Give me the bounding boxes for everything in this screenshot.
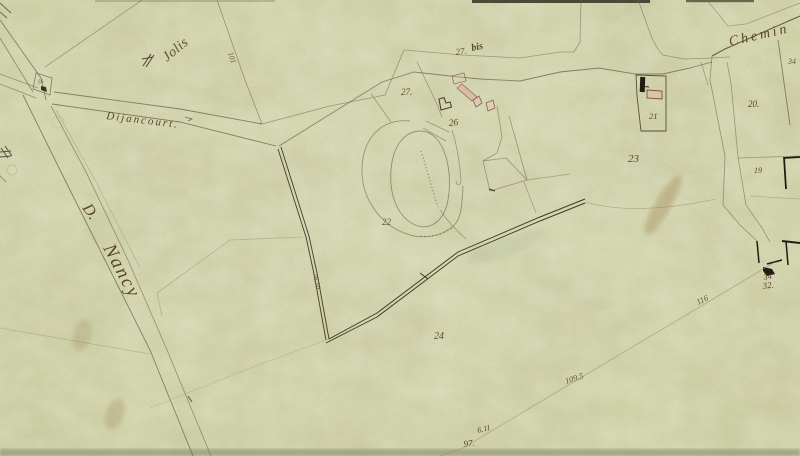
svg-text:20.: 20. xyxy=(748,99,759,109)
svg-text:27.: 27. xyxy=(401,87,412,97)
svg-text:32.: 32. xyxy=(761,280,775,292)
svg-text:26: 26 xyxy=(448,118,459,129)
svg-text:24: 24 xyxy=(434,331,444,342)
svg-text:27.: 27. xyxy=(455,46,468,57)
svg-text:21: 21 xyxy=(649,111,658,121)
svg-text:23: 23 xyxy=(628,153,640,165)
svg-text:19: 19 xyxy=(754,166,762,175)
svg-text:22: 22 xyxy=(382,217,392,227)
svg-text:34: 34 xyxy=(787,57,796,66)
svg-text:97.: 97. xyxy=(463,438,476,449)
